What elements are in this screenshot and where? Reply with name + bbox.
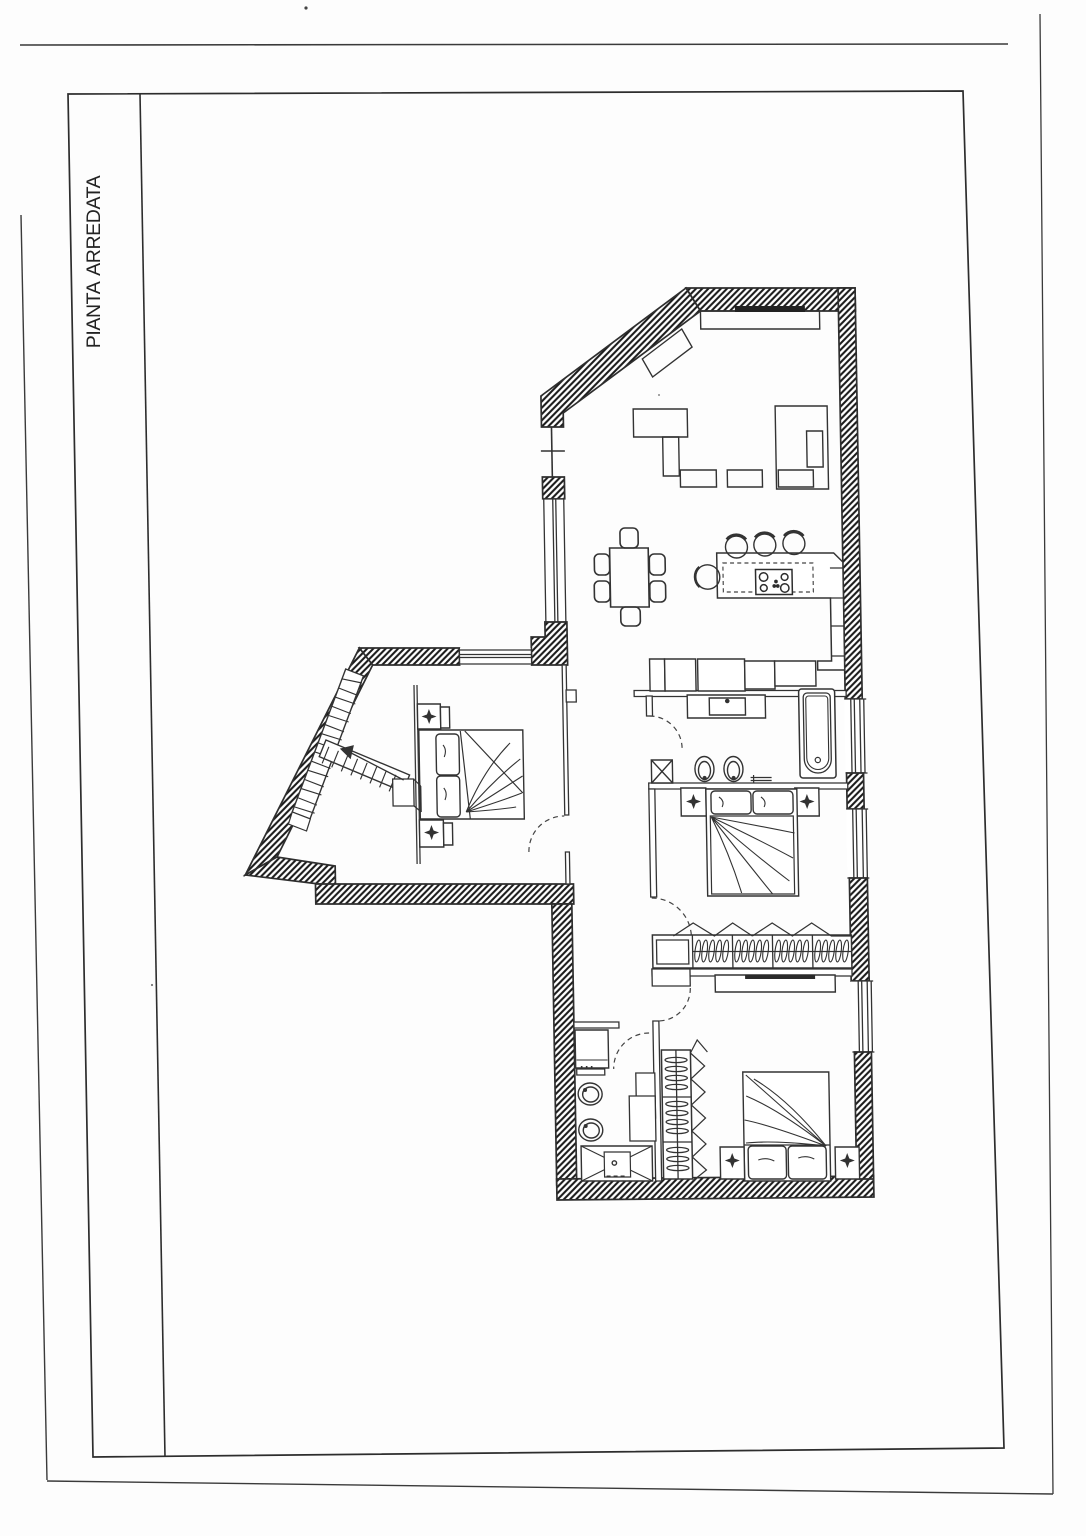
svg-text:PIANTA ARREDATA: PIANTA ARREDATA [83, 175, 105, 348]
